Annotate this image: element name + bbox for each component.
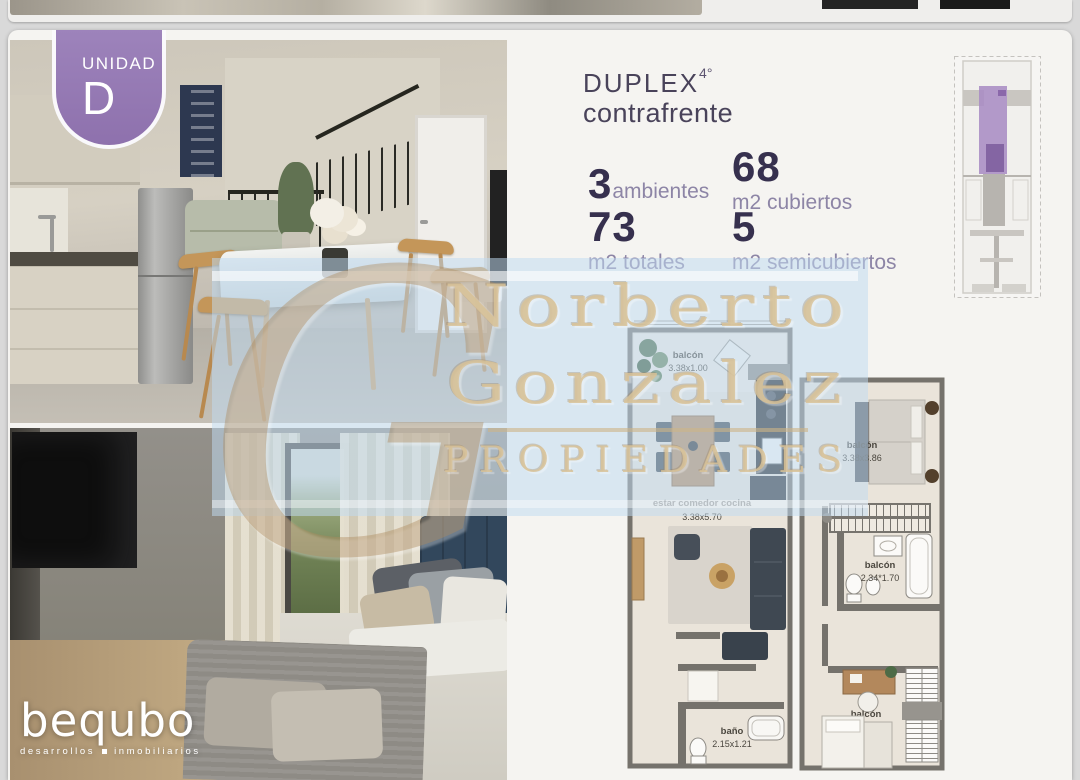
- unit-floor: 4°: [699, 65, 712, 81]
- bench-cushion: [271, 688, 383, 762]
- bequbo-logo-name: bequbo: [20, 698, 201, 743]
- key-plan-unit-core: [986, 144, 1004, 172]
- room-dims: 2.34*1.70: [861, 573, 900, 583]
- wall: [837, 604, 942, 611]
- fridge-divider: [138, 275, 193, 277]
- stat-semicubiertos: 5 m2 semicubiertos: [732, 206, 897, 273]
- nightstand: [925, 401, 939, 415]
- room-label: balcón: [847, 440, 878, 451]
- stat-label: m2 semicubiertos: [732, 252, 897, 273]
- cooktop: [766, 409, 776, 419]
- stat-value: 3: [588, 163, 612, 205]
- tv: [12, 432, 137, 568]
- dining-chair: [656, 422, 672, 442]
- door-leaf: [688, 671, 718, 701]
- toilet: [690, 738, 706, 758]
- sink-vanity: [874, 536, 902, 556]
- desk-papers: [850, 674, 862, 683]
- key-plan-wall: [970, 230, 1024, 236]
- ottoman: [722, 632, 768, 660]
- stat-label: m2 totales: [588, 252, 685, 273]
- previous-page-photo-fragment: [10, 0, 702, 15]
- stat-value: 5: [732, 206, 897, 248]
- bed-duvet: [864, 722, 892, 768]
- flower-bouquet: [310, 198, 344, 228]
- floorplan-lower-level: balcón 3.38x1.00 estar comedor cocina 3.…: [630, 321, 790, 766]
- unit-title: DUPLEX4° contrafrente: [583, 66, 733, 129]
- wall: [678, 702, 784, 709]
- key-plan-wall: [972, 284, 994, 292]
- kitchen-sink: [762, 438, 782, 464]
- key-plan-unit-detail: [998, 90, 1006, 96]
- key-plan: [950, 52, 1045, 302]
- room-dims: 2.15x1.21: [712, 739, 752, 749]
- wall: [676, 632, 720, 639]
- cooktop: [766, 391, 776, 401]
- kitchen-window: [10, 188, 68, 254]
- kitchen-island: [750, 476, 786, 500]
- key-plan-core: [983, 174, 1005, 226]
- centerpiece: [688, 441, 698, 451]
- brochure-screenshot: UNIDAD D DUPLEX4° contrafrente 3ambiente…: [0, 0, 1080, 780]
- stat-value: 68: [732, 146, 852, 188]
- wall: [678, 664, 756, 671]
- floorplan-upper-level: balcón 3.38x3.86 balcón 2.34*1.70 balcón…: [802, 380, 942, 768]
- stat-value: 73: [588, 206, 685, 248]
- nightstand: [925, 469, 939, 483]
- unit-badge: UNIDAD D: [52, 30, 166, 149]
- faucet: [50, 218, 54, 252]
- wall: [837, 532, 844, 604]
- previous-page-strip: [8, 0, 1072, 22]
- tv-edge: [490, 170, 507, 286]
- wall-art: [180, 85, 222, 177]
- plant: [637, 359, 651, 373]
- toilet: [846, 574, 862, 594]
- unit-badge-letter: D: [82, 75, 162, 121]
- stairs-rail: [830, 516, 930, 519]
- stat-label: ambientes: [612, 181, 709, 202]
- dining-chair: [714, 452, 730, 472]
- sideboard: [632, 538, 644, 600]
- stat-totales: 73 m2 totales: [588, 206, 685, 273]
- unit-orientation: contrafrente: [583, 98, 733, 129]
- bequbo-logo-tagline: desarrollos inmobiliarios: [20, 746, 201, 757]
- door-handle: [420, 220, 428, 224]
- toilet-tank: [691, 756, 706, 764]
- unit-type: DUPLEX4°: [583, 66, 733, 98]
- room-dims: 3.38x1.00: [668, 363, 708, 373]
- pillow: [911, 442, 922, 474]
- key-plan-wall: [1007, 90, 1031, 106]
- bequbo-logo: bequbo desarrollos inmobiliarios: [20, 698, 201, 757]
- key-plan-wall: [980, 258, 1013, 262]
- desk-plant: [885, 666, 897, 678]
- previous-page-plan-fragment: [822, 0, 918, 9]
- wall: [678, 702, 686, 766]
- wall: [902, 702, 942, 720]
- sofa: [750, 528, 786, 630]
- plant: [650, 370, 662, 382]
- room-label: balcón: [865, 560, 896, 571]
- coffee-table: [716, 570, 728, 582]
- plant: [652, 352, 668, 368]
- plant: [278, 162, 314, 236]
- pillow: [911, 406, 922, 438]
- dining-chair: [656, 452, 672, 472]
- square-bullet-icon: [102, 749, 107, 754]
- toilet-tank: [847, 594, 861, 602]
- room-dims: 3.38x5.70: [682, 512, 722, 522]
- room-label: baño: [721, 726, 744, 737]
- room-label: estar comedor cocina: [653, 498, 752, 509]
- dining-chair: [714, 422, 730, 442]
- stairs-newel: [822, 513, 832, 523]
- unit-type-text: DUPLEX: [583, 68, 699, 98]
- pillow: [826, 720, 860, 732]
- stat-ambientes: 3ambientes: [588, 163, 709, 205]
- tagline-left: desarrollos: [20, 746, 95, 757]
- wall: [822, 624, 828, 666]
- room-dims: 3.38x3.86: [842, 453, 882, 463]
- armchair: [674, 534, 700, 560]
- unit-badge-label: UNIDAD: [82, 54, 162, 74]
- bench-sofa: [190, 230, 278, 232]
- room-label: balcón: [673, 350, 704, 361]
- floor-plan: balcón 3.38x1.00 estar comedor cocina 3.…: [610, 318, 955, 780]
- wall: [748, 364, 790, 380]
- previous-page-plan-fragment: [940, 0, 1010, 9]
- plant: [639, 339, 657, 357]
- vase: [322, 248, 348, 278]
- key-plan-wall: [1002, 284, 1026, 292]
- tagline-right: inmobiliarios: [114, 746, 201, 757]
